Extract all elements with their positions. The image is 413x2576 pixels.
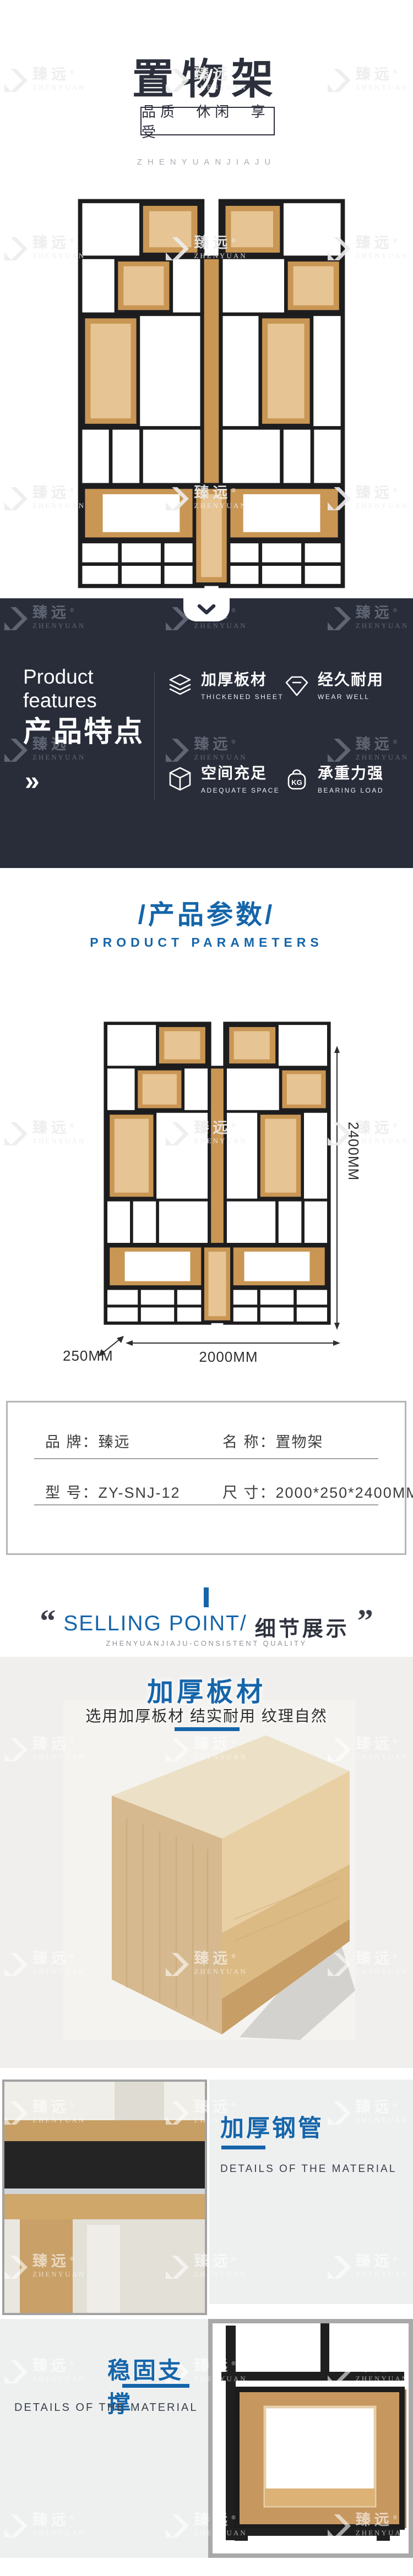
- watermark-zh: 臻远®: [32, 605, 85, 620]
- width-dimension-arrow: [126, 1339, 340, 1347]
- brand-line: ZHENYUANJIAJU: [0, 157, 413, 167]
- brand-watermark: 臻远®ZHENYUAN: [4, 485, 85, 512]
- detail-c-desc: DETAILS OF THE MATERIAL: [14, 2402, 198, 2414]
- depth-dimension-label: 250MM: [63, 1347, 113, 1365]
- spec-value: 臻远: [99, 1434, 131, 1450]
- spec-value: ZY-SNJ-12: [99, 1485, 181, 1501]
- brand-watermark: 臻远®ZHENYUAN: [4, 236, 85, 262]
- double-chevron-icon: »: [25, 766, 40, 796]
- feature-title: 承重力强: [318, 766, 384, 781]
- watermark-zh: 臻远®: [356, 485, 409, 500]
- watermark-en: ZHENYUAN: [356, 753, 409, 762]
- features-section: 臻远®ZHENYUAN臻远®ZHENYUAN臻远®ZHENYUAN 臻远®ZHE…: [0, 598, 413, 868]
- spec-size: 尺 寸：2000*250*2400MM: [222, 1481, 413, 1502]
- brand-watermark: 臻远®ZHENYUAN: [328, 737, 409, 763]
- detail-b-panel: 加厚钢管 DETAILS OF THE MATERIAL: [209, 2080, 413, 2304]
- params-heading-zh: /产品参数/: [0, 893, 413, 931]
- selling-point-heading: “ SELLING POINT/ 细节展示 ”: [0, 1612, 413, 1642]
- accent-bar: [175, 1727, 240, 1731]
- detail-c-panel: 稳固支撑 DETAILS OF THE MATERIAL: [0, 2319, 208, 2558]
- feature-title: 经久耐用: [318, 672, 384, 687]
- open-quote: “: [40, 1612, 56, 1631]
- watermark-en: ZHENYUAN: [356, 501, 409, 510]
- close-quote: ”: [357, 1612, 373, 1631]
- detail-b-title: 加厚钢管: [220, 2109, 324, 2143]
- chevron-logo-icon: [4, 1121, 28, 1147]
- selling-point-zh: 细节展示: [255, 1612, 350, 1642]
- watermark-zh: 臻远®: [356, 605, 409, 620]
- chevron-logo-icon: [4, 236, 28, 262]
- wood-box-photo: [63, 1683, 355, 2040]
- watermark-zh: 臻远®: [356, 737, 409, 752]
- watermark-en: ZHENYUAN: [194, 621, 247, 630]
- kg-weight-icon: KG: [284, 766, 310, 792]
- spec-model: 型 号：ZY-SNJ-12: [45, 1481, 181, 1502]
- svg-text:KG: KG: [291, 778, 302, 787]
- features-heading-en: Product features: [23, 665, 161, 713]
- steel-pipe-photo: [2, 2080, 207, 2315]
- watermark-zh: 臻远®: [32, 1121, 85, 1136]
- watermark-zh: 臻远®: [194, 737, 247, 752]
- product-image-shelf: [77, 198, 346, 589]
- detail-a-title: 加厚板材: [0, 1670, 413, 1709]
- feature-subtitle: ADEQUATE SPACE: [201, 787, 280, 794]
- spec-brand: 品 牌：臻远: [45, 1430, 131, 1451]
- chevron-logo-icon: [328, 605, 351, 632]
- watermark-en: ZHENYUAN: [32, 1137, 85, 1145]
- watermark-en: ZHENYUAN: [356, 621, 409, 630]
- layers-icon: [167, 672, 193, 698]
- chevron-logo-icon: [328, 737, 351, 763]
- feature-subtitle: THICKENED SHEET: [201, 693, 284, 701]
- watermark-en: ZHENYUAN: [356, 1137, 409, 1145]
- brand-watermark: 臻远®ZHENYUAN: [4, 605, 85, 632]
- params-heading-en: PRODUCT PARAMETERS: [0, 935, 413, 950]
- watermark-zh: 臻远®: [356, 1121, 409, 1136]
- spec-label: 品 牌：: [45, 1434, 99, 1450]
- spec-label: 型 号：: [45, 1485, 99, 1501]
- vertical-divider: [154, 673, 155, 799]
- feature-item-adequate-space: 空间充足 ADEQUATE SPACE: [167, 766, 280, 794]
- detail-a-desc: 选用加厚板材 结实耐用 纹理自然: [0, 1704, 413, 1726]
- chevron-logo-icon: [4, 605, 28, 632]
- brand-watermark: 臻远®ZHENYUAN: [4, 1121, 85, 1147]
- chevron-down-icon: [197, 604, 216, 615]
- slogan-box: 品质 休闲 享受: [140, 107, 275, 135]
- feature-item-wear-well: 经久耐用 WEAR WELL: [284, 672, 384, 701]
- accent-bar: [221, 2146, 265, 2149]
- features-heading-zh: 产品特点: [23, 708, 144, 750]
- selling-point-subtitle: ZHENYUANJIAJU-CONSISTENT QUALITY: [0, 1639, 413, 1647]
- accent-bar: [122, 2384, 189, 2388]
- product-detail-page: 臻远®ZHENYUAN臻远®ZHENYUAN臻远®ZHENYUAN 臻远®ZHE…: [0, 0, 413, 2576]
- feature-item-bearing-load: KG 承重力强 BEARING LOAD: [284, 766, 384, 794]
- brand-watermark: 臻远®ZHENYUAN: [166, 737, 247, 763]
- feature-title: 加厚板材: [201, 672, 284, 687]
- spec-table: 品 牌：臻远 名 称：置物架 型 号：ZY-SNJ-12 尺 寸：2000*25…: [6, 1401, 406, 1555]
- watermark-en: ZHENYUAN: [194, 753, 247, 762]
- page-title: 置物架: [0, 45, 413, 106]
- spec-label: 名 称：: [222, 1434, 276, 1450]
- height-dimension-arrow: [332, 1046, 342, 1330]
- chevron-logo-icon: [166, 737, 189, 763]
- height-dimension-label: 2400MM: [345, 1122, 362, 1181]
- width-dimension-label: 2000MM: [187, 1349, 270, 1366]
- selling-point-en: SELLING POINT/: [63, 1612, 247, 1636]
- spec-label: 尺 寸：: [222, 1485, 276, 1501]
- table-divider: [34, 1504, 378, 1505]
- detail-b-desc: DETAILS OF THE MATERIAL: [220, 2163, 396, 2175]
- watermark-en: ZHENYUAN: [32, 753, 85, 762]
- feature-item-thickened-sheet: 加厚板材 THICKENED SHEET: [167, 672, 284, 701]
- support-frame-photo: [208, 2319, 413, 2558]
- table-divider: [34, 1458, 378, 1459]
- accent-bar: [204, 1587, 209, 1607]
- watermark-zh: 臻远®: [356, 236, 409, 250]
- feature-subtitle: BEARING LOAD: [318, 787, 384, 794]
- watermark-en: ZHENYUAN: [32, 621, 85, 630]
- chevron-logo-icon: [4, 485, 28, 512]
- spec-name: 名 称：置物架: [222, 1430, 324, 1451]
- scroll-tab: [183, 598, 230, 621]
- gem-icon: [284, 672, 310, 698]
- brand-watermark: 臻远®ZHENYUAN: [328, 605, 409, 632]
- watermark-en: ZHENYUAN: [356, 252, 409, 260]
- cube-icon: [167, 766, 193, 792]
- feature-subtitle: WEAR WELL: [318, 693, 384, 701]
- product-image-dimensions: [103, 1021, 332, 1325]
- spec-value: 置物架: [276, 1434, 324, 1450]
- feature-title: 空间充足: [201, 766, 280, 781]
- spec-value: 2000*250*2400MM: [276, 1485, 413, 1501]
